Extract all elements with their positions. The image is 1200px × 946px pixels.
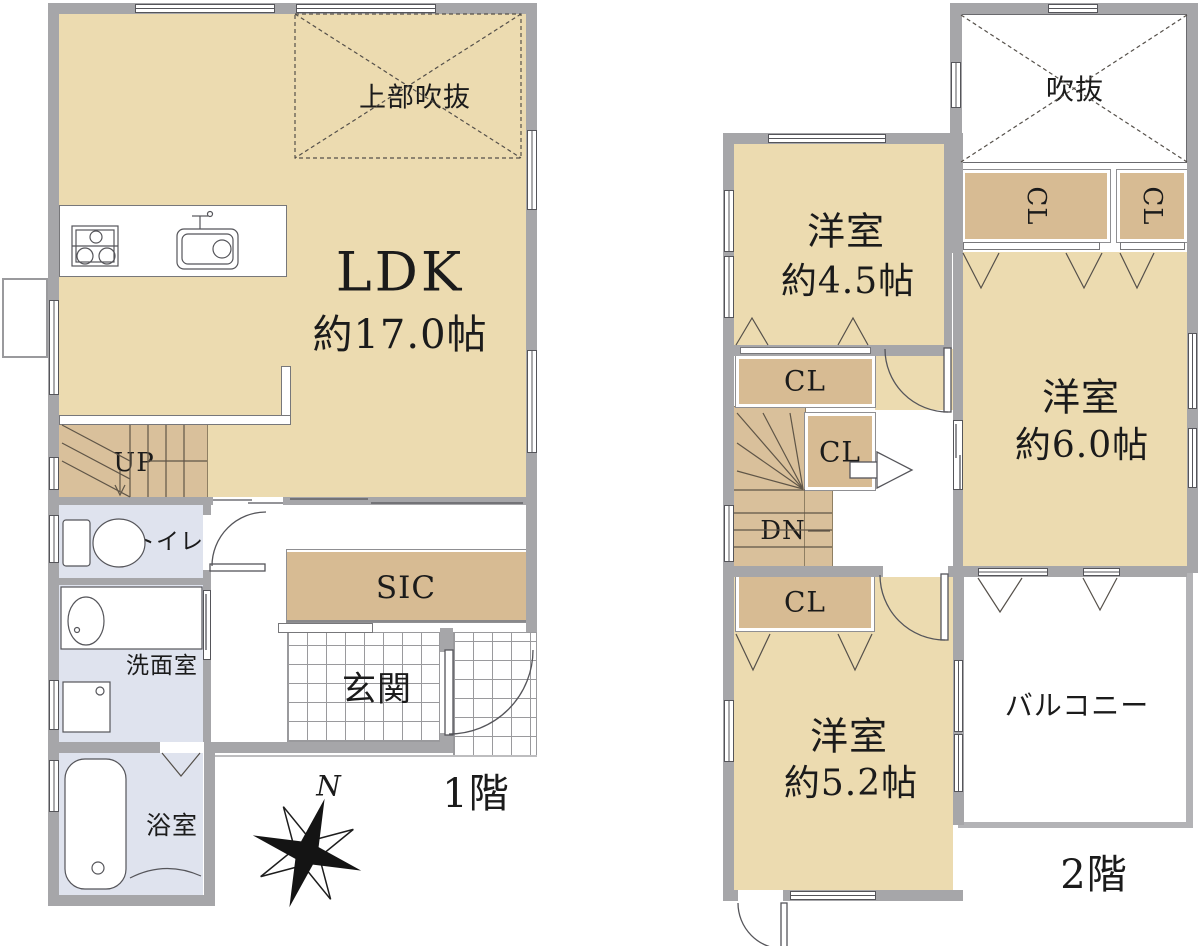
window <box>978 568 1048 576</box>
wall <box>440 733 453 742</box>
balcony-fence <box>958 822 1193 828</box>
wall <box>283 497 526 505</box>
window <box>724 700 734 762</box>
void-label: 吹抜 <box>1046 68 1104 108</box>
wall <box>944 144 952 349</box>
window <box>768 134 886 143</box>
room60-sliding-door <box>953 420 963 490</box>
room45-size-label: 約4.5帖 <box>781 252 915 304</box>
room60-size-label: 約6.0帖 <box>1015 416 1149 468</box>
wall <box>59 497 213 505</box>
wall <box>48 895 215 906</box>
washroom-label: 洗面室 <box>126 646 198 680</box>
window <box>954 734 963 792</box>
wall <box>203 505 211 515</box>
wall <box>287 620 526 622</box>
closet-e-label: CL <box>784 586 826 619</box>
wall <box>204 742 215 906</box>
balcony-fence <box>1186 573 1193 828</box>
floor1-label: 1階 <box>442 761 509 819</box>
wall <box>953 242 963 577</box>
upper-void-label: 上部吹抜 <box>359 76 471 115</box>
window <box>954 660 963 732</box>
room52-size-label: 約5.2帖 <box>784 754 918 806</box>
wall <box>48 3 537 14</box>
window <box>527 350 537 453</box>
window <box>1188 428 1197 488</box>
closet-a-label: CL <box>1021 186 1051 225</box>
window <box>49 300 59 395</box>
hall-vestibule <box>875 349 953 410</box>
washroom-sliding-door <box>203 590 211 660</box>
window <box>790 891 876 900</box>
door-opening <box>738 890 783 901</box>
room60-label: 洋室 <box>1042 367 1120 422</box>
wall <box>526 3 537 632</box>
bay-window <box>2 278 48 358</box>
window <box>951 62 961 108</box>
wall <box>204 742 453 753</box>
window <box>49 760 59 812</box>
wall <box>59 742 160 753</box>
stairs-down-area2 <box>805 490 832 567</box>
wall <box>59 578 203 585</box>
window <box>527 130 537 210</box>
window <box>1188 333 1197 409</box>
closet-b-label: CL <box>1137 186 1167 225</box>
kitchen-counter <box>59 205 287 277</box>
wall <box>440 628 453 652</box>
room52-label: 洋室 <box>810 706 888 761</box>
compass-icon <box>235 781 379 925</box>
closet-d-label: CL <box>819 436 861 469</box>
ldk-size-label: 約17.0帖 <box>312 302 487 360</box>
window <box>724 256 734 318</box>
stairs-down-label: DN <box>760 516 806 546</box>
window <box>1083 568 1120 576</box>
room45-label: 洋室 <box>807 201 885 256</box>
ldk-label: LDK <box>336 241 465 304</box>
window <box>1048 4 1098 13</box>
bathroom-label: 浴室 <box>146 806 198 842</box>
wall <box>203 570 211 590</box>
balcony-label: バルコニー <box>1005 684 1149 724</box>
floor-plan: 上部吹抜 LDK 約17.0帖 UP トイレ 洗面室 浴室 SIC 玄関 1階 … <box>0 0 1200 946</box>
window <box>724 505 734 562</box>
closet-a-track <box>963 242 1100 250</box>
porch-step-line <box>215 755 537 757</box>
wall <box>723 566 883 577</box>
entrance-label: 玄関 <box>342 662 412 711</box>
kitchen-half-wall-h <box>59 415 291 425</box>
closet-c-label: CL <box>784 365 826 398</box>
stairs-up-label: UP <box>113 448 154 478</box>
porch-tiles <box>453 632 537 757</box>
closet-b-track <box>1120 242 1185 250</box>
window <box>135 4 275 13</box>
sic-label: SIC <box>376 570 436 606</box>
floor2-label: 2階 <box>1060 842 1127 900</box>
window <box>49 457 59 490</box>
door-opening <box>883 566 948 577</box>
wall <box>203 660 211 742</box>
window <box>296 4 436 13</box>
entrance-step <box>278 623 373 633</box>
window <box>724 190 734 252</box>
toilet-label: トイレ <box>132 522 204 556</box>
compass-north-label: N <box>316 770 342 803</box>
window <box>49 680 59 730</box>
window <box>49 515 59 563</box>
closet-c-track <box>740 347 871 354</box>
